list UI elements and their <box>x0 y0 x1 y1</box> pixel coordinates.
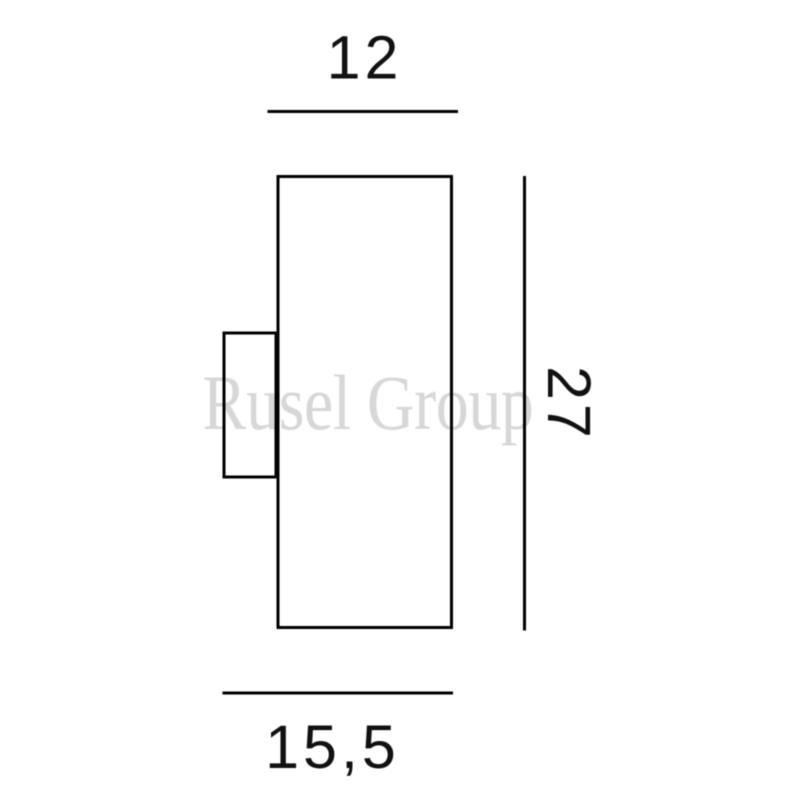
svg-text:15,5: 15,5 <box>265 713 400 781</box>
svg-text:27: 27 <box>535 366 603 442</box>
svg-text:Rusel Group: Rusel Group <box>203 360 534 446</box>
svg-text:12: 12 <box>327 24 403 92</box>
